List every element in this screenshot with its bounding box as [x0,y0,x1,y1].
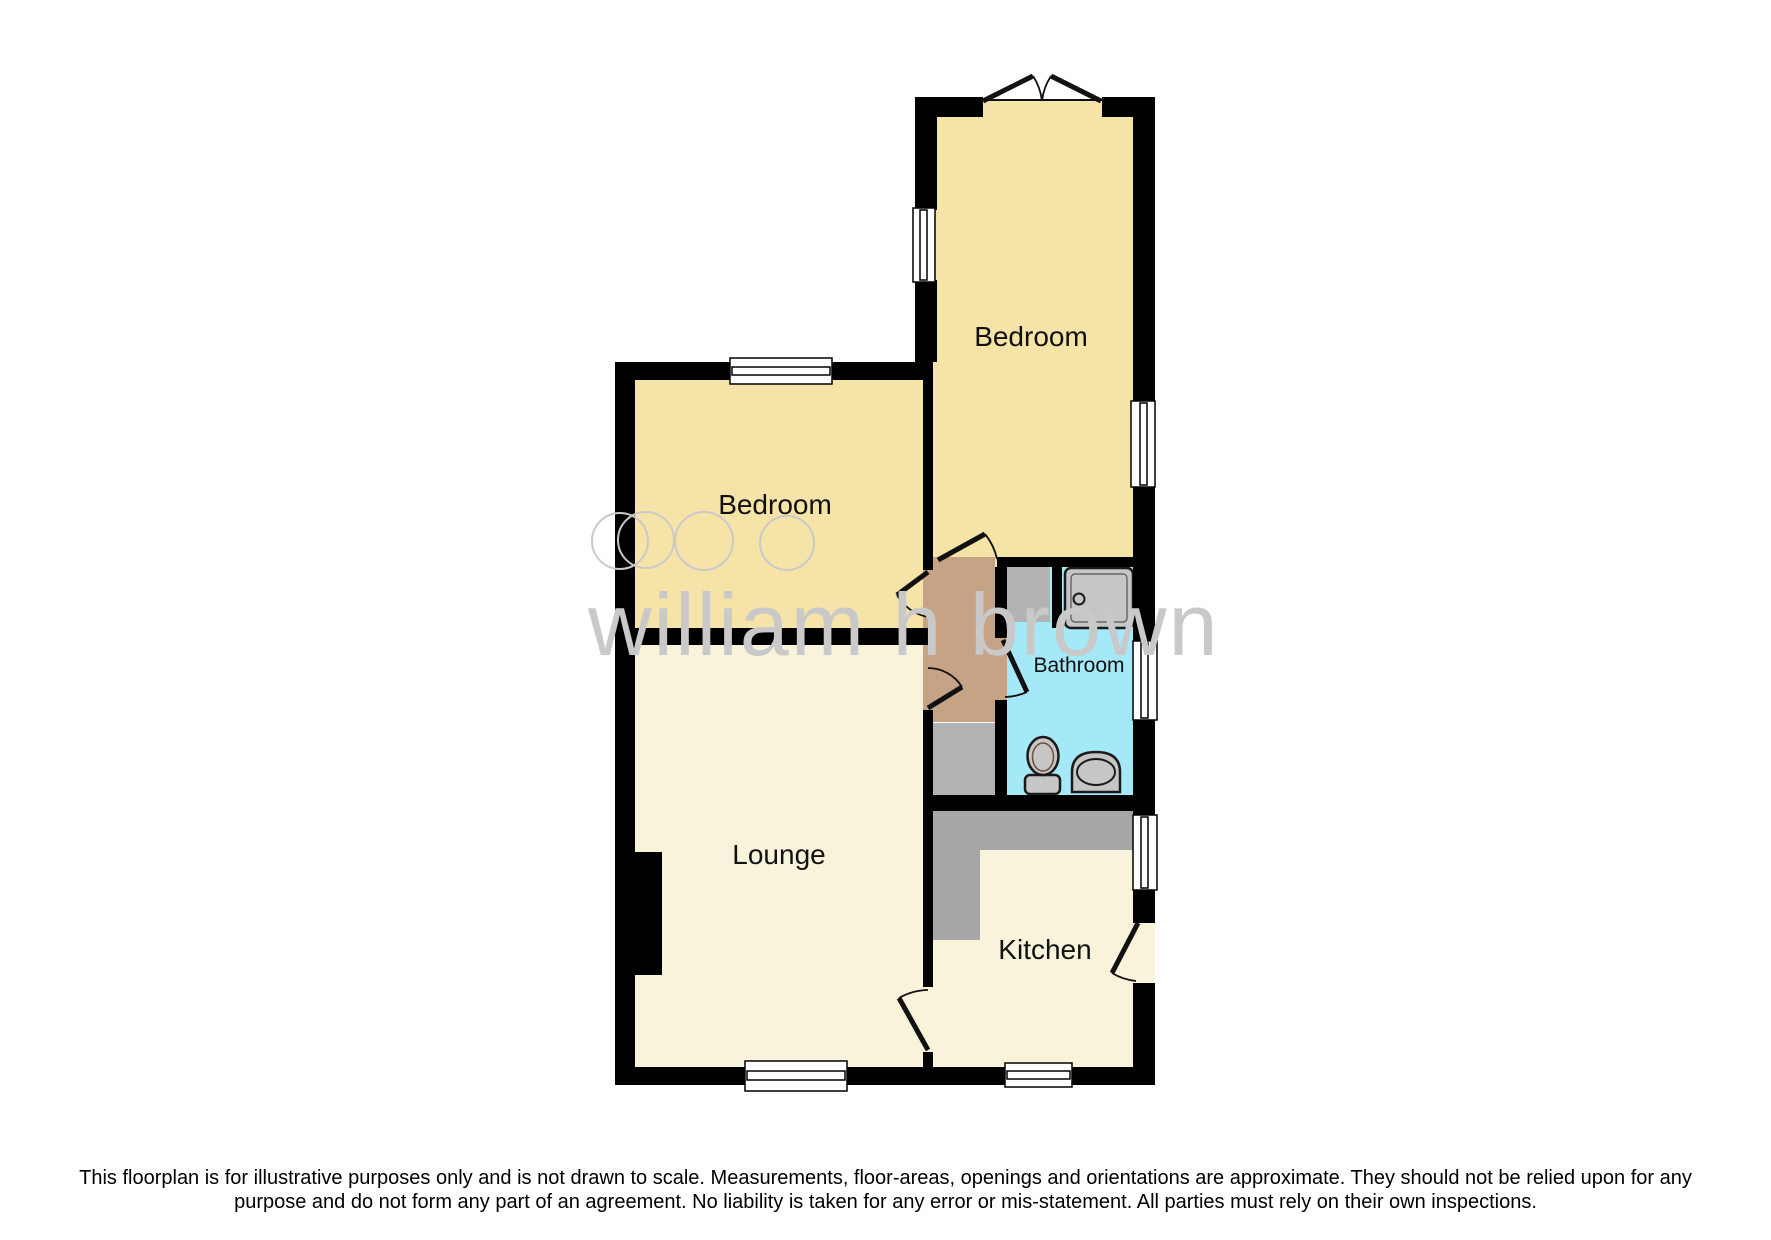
wall-segment [923,1052,933,1067]
wash-basin-icon [1072,752,1120,792]
disclaimer-line-1: This floorplan is for illustrative purpo… [0,1166,1771,1190]
kitchen-door-opening-floor [1133,923,1155,983]
wall-segment [997,557,1137,567]
wall-segment [915,97,937,210]
wall-segment [1072,1067,1155,1085]
room-label-kitchen: Kitchen [998,934,1091,965]
wall-segment [923,811,933,987]
room-label-bathroom: Bathroom [1033,654,1124,677]
wall-segment [923,795,1137,811]
wall-segment [923,710,933,795]
wall-segment [995,700,1007,795]
wall-segment [1133,888,1155,923]
wall-segment [830,362,933,380]
floorplan-page: william h brown Bedroom Bedroom Bathroom… [0,0,1771,1240]
wall-segment [847,1067,1005,1085]
watermark-text: william h brown [587,575,1220,674]
window [1005,1063,1072,1087]
window [913,208,935,282]
room-label-lounge: Lounge [732,839,825,870]
wall-segment [923,362,933,570]
window [745,1061,847,1091]
window [1131,401,1155,487]
disclaimer-line-2: purpose and do not form any part of an a… [0,1190,1771,1214]
room-label-bedroom-left: Bedroom [718,489,832,520]
wall-segment [615,362,635,1085]
toilet-icon [1025,737,1060,794]
wall-segment [1133,97,1155,403]
fireplace [635,852,662,975]
wall-segment [615,1067,745,1085]
disclaimer: This floorplan is for illustrative purpo… [0,1166,1771,1214]
wall-segment [915,280,937,362]
floorplan: william h brown Bedroom Bedroom Bathroom… [0,0,1771,1240]
storage-cupboard [930,723,997,795]
window [730,358,832,384]
window [1133,815,1157,890]
room-label-bedroom-top: Bedroom [974,321,1088,352]
bedroom-top-doorway-floor [983,99,1102,119]
french-doors [983,76,1102,101]
kitchen-counter-left [933,811,980,940]
